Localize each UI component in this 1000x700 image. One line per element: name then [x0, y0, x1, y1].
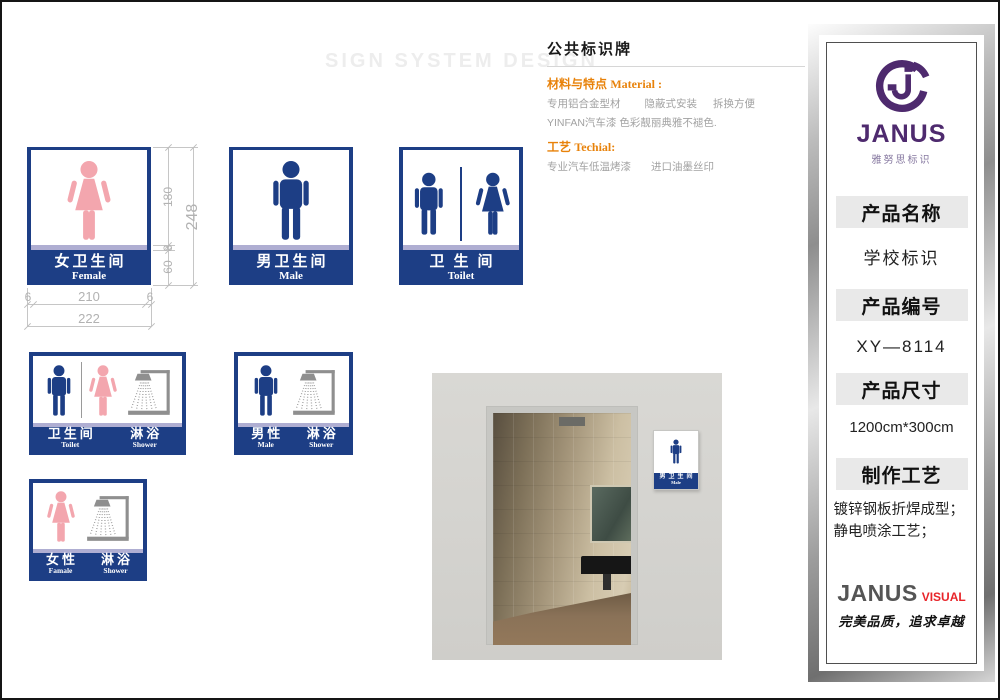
ceiling-pipe — [559, 417, 585, 426]
page-title: 公共标识牌 — [547, 38, 805, 67]
product-panel: JANUS 雅努思标识 产品名称 学校标识 产品编号 XY—8114 产品尺寸 … — [808, 24, 995, 682]
sink-leg — [603, 574, 611, 590]
footer-brand: JANUS VISUAL — [837, 580, 965, 607]
shower-icon — [84, 492, 136, 546]
male-icon — [38, 363, 80, 420]
product-size-value: 1200cm*300cm — [849, 419, 953, 436]
janus-logo-icon — [871, 57, 933, 119]
female-icon — [82, 363, 124, 420]
sign-band: 男卫生间 Male — [233, 250, 349, 285]
female-icon — [56, 161, 122, 243]
footer-slogan: 完美品质，追求卓越 — [838, 611, 964, 630]
tech-label: 工艺 Techial: — [547, 138, 805, 155]
sign-unisex-toilet: 卫生间 Toilet — [399, 147, 523, 285]
dim-180: 180 — [161, 177, 175, 217]
product-size-label: 产品尺寸 — [836, 373, 968, 405]
male-icon — [245, 363, 287, 420]
dim-6-left: 6 — [22, 290, 34, 304]
craft-label: 制作工艺 — [836, 458, 968, 490]
sign-band: 女性 Famale 淋浴 Shower — [33, 553, 143, 577]
sink-counter — [581, 556, 631, 574]
doorway-opening — [493, 413, 631, 645]
material-label-en: Material : — [610, 77, 662, 91]
material-line2: YINFAN汽车漆 色彩靓丽典雅不褪色. — [547, 115, 805, 130]
sign-female-shower: 女性 Famale 淋浴 Shower — [29, 479, 147, 581]
spec-header: 公共标识牌 材料与特点 Material : 专用铝合金型材 隐蔽式安装 拆换方… — [547, 38, 805, 174]
installation-photo: 男卫生间 Male — [432, 373, 722, 660]
material-label: 材料与特点 Material : — [547, 75, 805, 92]
dim-210: 210 — [69, 289, 109, 304]
mirror — [590, 485, 631, 543]
sign-toilet-shower: 卫生间 Toilet 淋浴 Shower — [29, 352, 186, 455]
product-code-value: XY—8114 — [856, 337, 946, 357]
sign-band: 女卫生间 Female — [31, 250, 147, 285]
material-line1: 专用铝合金型材 隐蔽式安装 拆换方便 — [547, 96, 805, 111]
tech-line: 专业汽车低温烤漆 进口油墨丝印 — [547, 159, 805, 174]
tech-label-en: Techial: — [574, 140, 615, 154]
product-name-label: 产品名称 — [836, 196, 968, 228]
dim-6-right: 6 — [144, 290, 156, 304]
mounted-male-sign: 男卫生间 Male — [653, 430, 699, 490]
sign-band: 卫生间 Toilet — [403, 250, 519, 285]
female-icon — [467, 167, 519, 243]
product-code-label: 产品编号 — [836, 289, 968, 321]
dim-222: 222 — [69, 311, 109, 326]
sign-female-toilet: 女卫生间 Female — [27, 147, 151, 285]
shower-icon — [290, 366, 342, 420]
sign-male-shower: 男性 Male 淋浴 Shower — [234, 352, 353, 455]
dim-248: 248 — [184, 192, 202, 242]
product-name-value: 学校标识 — [864, 244, 940, 269]
male-icon — [666, 437, 686, 467]
male-icon — [258, 161, 324, 243]
sign-band: 男性 Male 淋浴 Shower — [238, 427, 349, 451]
male-icon — [403, 167, 455, 243]
dim-60: 60 — [161, 252, 175, 282]
brand-name: JANUS — [857, 120, 947, 149]
female-icon — [40, 489, 82, 546]
divider-line — [460, 167, 463, 241]
craft-text: 镀锌钢板折焊成型；静电喷涂工艺； — [834, 500, 970, 544]
shower-icon — [125, 366, 177, 420]
brand-subtitle: 雅努思标识 — [872, 151, 932, 166]
design-sheet: SIGN SYSTEM DESIGN 公共标识牌 材料与特点 Material … — [0, 0, 1000, 700]
sign-male-toilet: 男卫生间 Male — [229, 147, 353, 285]
sign-band: 卫生间 Toilet 淋浴 Shower — [33, 427, 182, 451]
